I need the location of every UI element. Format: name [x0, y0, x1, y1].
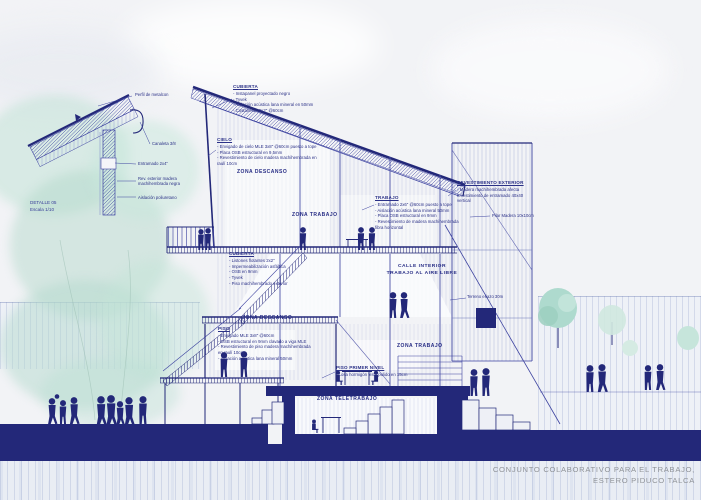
annotation-revestimiento: REVESTIMIENTO EXTERIOR Madera machihembr… [457, 180, 529, 204]
detail-scale: Escala 1/10 [30, 207, 54, 212]
ball [55, 394, 60, 399]
annotation-item: Madera machihembrada afecta revestimient… [457, 187, 529, 204]
person-silhouette [482, 368, 490, 396]
person-silhouette [656, 364, 665, 390]
zone-label-teletrabajo: ZONA TELETRABAJO [317, 396, 377, 402]
person-silhouette [60, 400, 66, 424]
annotation-item: Revestimiento de cielo madera machihembr… [217, 155, 317, 166]
construction-detail-drawing [28, 95, 150, 215]
annotation-title: CIELO [217, 137, 317, 143]
annotation-pilar: Pilar Madera 10x10cm [492, 213, 534, 218]
annotation-item: Envigado de cielo MLE 3x8" @60cm puesto … [217, 144, 317, 150]
calle-line2: TRABAJO AL AIRE LIBRE [387, 271, 458, 276]
tree-right [538, 288, 699, 356]
zone-label-descanso-sup: ZONA DESCANSO [237, 169, 287, 175]
annotation-item: Aislación acústica lana mineral 50mm [218, 356, 316, 362]
annotation-title: REVESTIMIENTO EXTERIOR [457, 180, 529, 186]
annotation-terreno: Terreno eriazo 30m [467, 294, 503, 299]
zone-label-calle-interior: CALLE INTERIOR TRABAJO AL AIRE LIBRE [378, 263, 466, 278]
annotation-item: Piso machihembrado exterior [229, 281, 307, 287]
zone-label-trabajo-inf: ZONA TRABAJO [397, 343, 443, 349]
detail-callout: Perfil de metalcon [135, 92, 169, 97]
detail-callout: Aislación poliuretano [138, 195, 177, 200]
section-drawing [0, 0, 701, 500]
person-silhouette [470, 369, 477, 396]
tree-branches [60, 240, 130, 420]
annotation-piso: PISO Envigado MLE 3x8" @60cm OSB estruct… [218, 326, 316, 361]
person-silhouette [645, 365, 652, 390]
detail-label: DETALLE 05 [30, 200, 56, 205]
person-silhouette [116, 401, 125, 426]
annotation-title: PISO PRIMER NIVEL [336, 365, 412, 371]
detail-title: DETALLE 05 Escala 1/10 [30, 200, 56, 214]
annotation-trabajo: TRABAJO Entramado 2x6" @60cm puesto a to… [375, 195, 463, 230]
annotation-item: Revestimiento de madera machihembrada fi… [375, 219, 463, 230]
legend-box [476, 308, 496, 328]
detail-callout: Rev. exterior madera machihembrada negra [138, 176, 190, 186]
project-title-line2: ESTERO PIDUCO TALCA [593, 476, 695, 485]
annotation-cielo: CIELO Envigado de cielo MLE 3x8" @60cm p… [217, 137, 317, 167]
annotation-title: CUBIERTA [229, 251, 307, 257]
person-silhouette [586, 365, 593, 392]
detail-callout: Canaleta 3/8 [152, 141, 176, 146]
detail-callout: Entramado 2x4" [138, 161, 168, 166]
annotation-cubierta: CUBIERTA Instapanel proyectado negro Tyv… [233, 84, 345, 114]
annotation-item: Losa hormigón visto pulido en 15cm [336, 372, 412, 378]
zone-label-trabajo-sup: ZONA TRABAJO [292, 212, 338, 218]
annotation-title: CUBIERTA [233, 84, 345, 90]
person-silhouette [125, 397, 135, 426]
annotation-piso-primer-nivel: PISO PRIMER NIVEL Losa hormigón visto pu… [336, 365, 412, 378]
annotation-item: Costaneras 2x2" @60cm [233, 108, 345, 114]
annotation-item: Entramado 2x6" @60cm puesto a tope [375, 202, 463, 208]
person-silhouette [598, 364, 608, 392]
basement-room [295, 398, 437, 434]
person-silhouette [48, 398, 57, 424]
calle-line1: CALLE INTERIOR [398, 264, 446, 269]
annotation-title: PISO [218, 326, 316, 332]
person-silhouette [139, 396, 147, 424]
annotation-title: TRABAJO [375, 195, 463, 201]
person-silhouette [106, 395, 117, 426]
architectural-section-canvas: Perfil de metalcon Canaleta 3/8 Entramad… [0, 0, 701, 500]
annotation-item: Revestimiento de piso madera machihembra… [218, 344, 316, 355]
person-silhouette [70, 397, 80, 424]
project-title: CONJUNTO COLABORATIVO PARA EL TRABAJO, E… [493, 464, 695, 487]
person-silhouette [97, 396, 108, 426]
project-title-line1: CONJUNTO COLABORATIVO PARA EL TRABAJO, [493, 465, 695, 474]
zone-label-descanso-inf: ZONA DESCANSO [242, 315, 292, 321]
annotation-terraza: CUBIERTA Listones flotantes 2x2" Imperme… [229, 251, 307, 286]
